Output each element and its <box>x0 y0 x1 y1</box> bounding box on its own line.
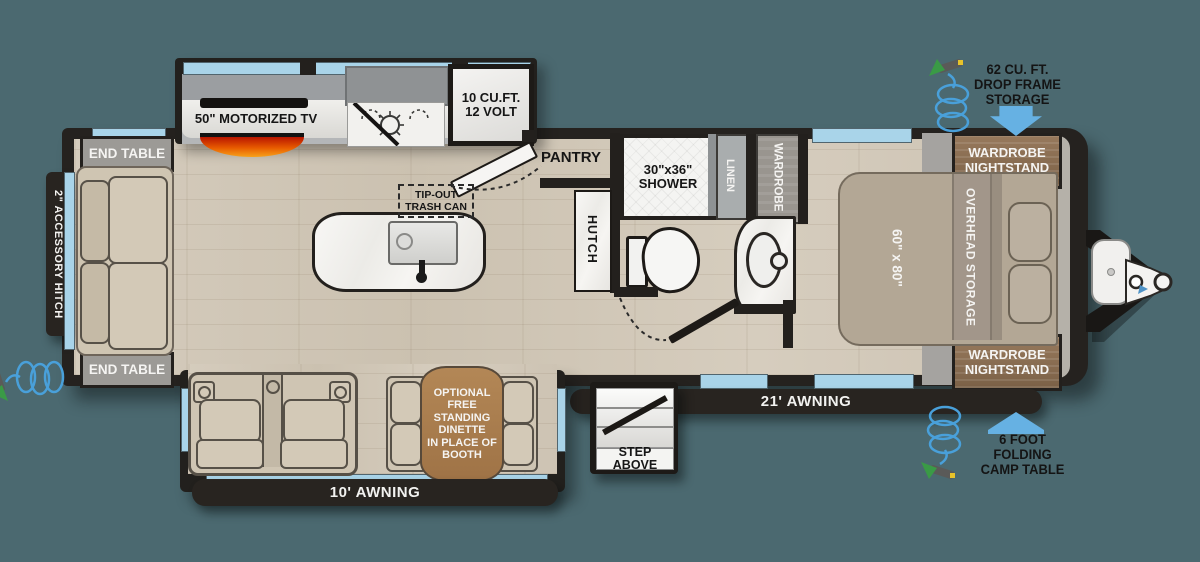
nightstand-bottom-line1: WARDROBE <box>968 348 1045 363</box>
bedroom-bottom-window-1 <box>700 374 768 389</box>
hutch-label: HUTCH <box>576 192 606 286</box>
trash-line1: TIP-OUT <box>405 189 467 201</box>
pantry-wall <box>540 178 618 188</box>
shower: 30"x36" SHOWER <box>620 134 716 220</box>
dinette-line4: DINETTE <box>438 424 485 437</box>
tv-label: 50" MOTORIZED TV <box>190 112 322 126</box>
bath-wall-side <box>783 300 793 348</box>
bed: OVERHEAD STORAGE 60" x 80" <box>838 172 1058 346</box>
tongue-hitch <box>1086 230 1171 342</box>
theater-seating <box>188 372 358 476</box>
coupler <box>1126 260 1168 304</box>
main-awning-label: 21' AWNING <box>761 393 852 410</box>
hutch: HUTCH <box>574 190 612 292</box>
pillow <box>1008 202 1052 262</box>
left-window <box>64 172 75 350</box>
up-arrow-icon <box>988 412 1044 434</box>
camp-note-line1: 6 FOOT <box>963 432 1083 447</box>
tv <box>200 98 308 108</box>
end-table-bottom: END TABLE <box>80 352 174 388</box>
bedroom-top-window <box>812 128 912 143</box>
step-label: STEP ABOVE <box>597 446 673 473</box>
end-table-bottom-label: END TABLE <box>89 362 165 377</box>
trash-line2: TRASH CAN <box>405 201 467 213</box>
slide-window-right <box>557 388 566 452</box>
linen-label: LINEN <box>718 136 742 214</box>
shower-word: SHOWER <box>639 177 698 191</box>
spray-hose-icon <box>918 400 970 484</box>
step-label-band: STEP ABOVE <box>596 448 674 470</box>
burner-icon <box>348 103 444 146</box>
dinette-line1: OPTIONAL <box>434 387 491 400</box>
overhead-storage: OVERHEAD STORAGE <box>952 174 992 340</box>
end-table-top-label: END TABLE <box>89 146 165 161</box>
accessory-hitch-label: 2" ACCESSORY HITCH <box>52 174 64 334</box>
cooktop <box>347 102 445 147</box>
stove-back <box>345 66 449 106</box>
propane-tank-cover <box>1092 240 1130 304</box>
dinette-line5: IN PLACE OF <box>427 437 497 450</box>
window-mullion <box>300 60 316 75</box>
overhead-storage-label: OVERHEAD STORAGE <box>954 174 986 340</box>
nightstand-bottom-line2: NIGHTSTAND <box>965 363 1049 378</box>
refrigerator-label: 10 CU.FT. 12 VOLT <box>453 69 529 141</box>
dinette-line2: FREE <box>447 399 476 412</box>
seat-cushion <box>196 439 264 469</box>
bedroom-bottom-window-2 <box>814 374 914 389</box>
camp-note-line2: FOLDING <box>963 447 1083 462</box>
spray-hose-icon <box>926 54 978 138</box>
seat-back <box>283 399 345 443</box>
sofa <box>76 166 174 356</box>
dinette-line3: STANDING <box>434 412 491 425</box>
shower-ledge <box>708 134 716 216</box>
pillow <box>1008 264 1052 324</box>
seat-cushion <box>280 439 348 469</box>
sink-drain <box>396 233 413 250</box>
camp-table-note: 6 FOOT FOLDING CAMP TABLE <box>963 432 1083 477</box>
rear-awning-label: 10' AWNING <box>330 484 421 501</box>
seat-back <box>199 399 261 443</box>
bath-wardrobe: WARDROBE <box>756 134 802 224</box>
wardrobe-label: WARDROBE <box>758 136 796 218</box>
vanity-faucet <box>770 252 788 270</box>
sofa-back-cushion <box>80 180 110 262</box>
door-hinge <box>522 130 534 142</box>
sofa-seat-cushion <box>108 262 168 350</box>
trash-can-label: TIP-OUT TRASH CAN <box>398 184 474 218</box>
bed-size-label: 60" x 80" <box>886 210 908 306</box>
sofa-back-cushion <box>80 262 110 344</box>
dinette-line6: BOOTH <box>442 449 482 462</box>
fridge-line2: 12 VOLT <box>465 105 517 119</box>
bath-wall-toilet <box>614 287 658 297</box>
spray-hose-icon <box>0 352 70 404</box>
shower-size: 30"x36" <box>639 163 698 177</box>
rear-awning-bar: 10' AWNING <box>192 479 558 506</box>
linen-wardrobe-wall <box>746 134 756 220</box>
bath-bedroom-wall <box>798 134 808 224</box>
sink-faucet-head <box>416 272 427 283</box>
nightstand-top-line1: WARDROBE <box>968 146 1045 161</box>
rv-floorplan-diagram: 50" MOTORIZED TV 10 CU.FT. 12 VOLT 2" AC… <box>0 0 1200 562</box>
sofa-seat-cushion <box>108 176 168 264</box>
dinette-table: OPTIONAL FREE STANDING DINETTE IN PLACE … <box>420 366 504 482</box>
fridge-line1: 10 CU.FT. <box>462 91 521 105</box>
pantry-label: PANTRY <box>528 150 614 166</box>
camp-note-line3: CAMP TABLE <box>963 462 1083 477</box>
linen-cabinet: LINEN <box>716 134 748 220</box>
